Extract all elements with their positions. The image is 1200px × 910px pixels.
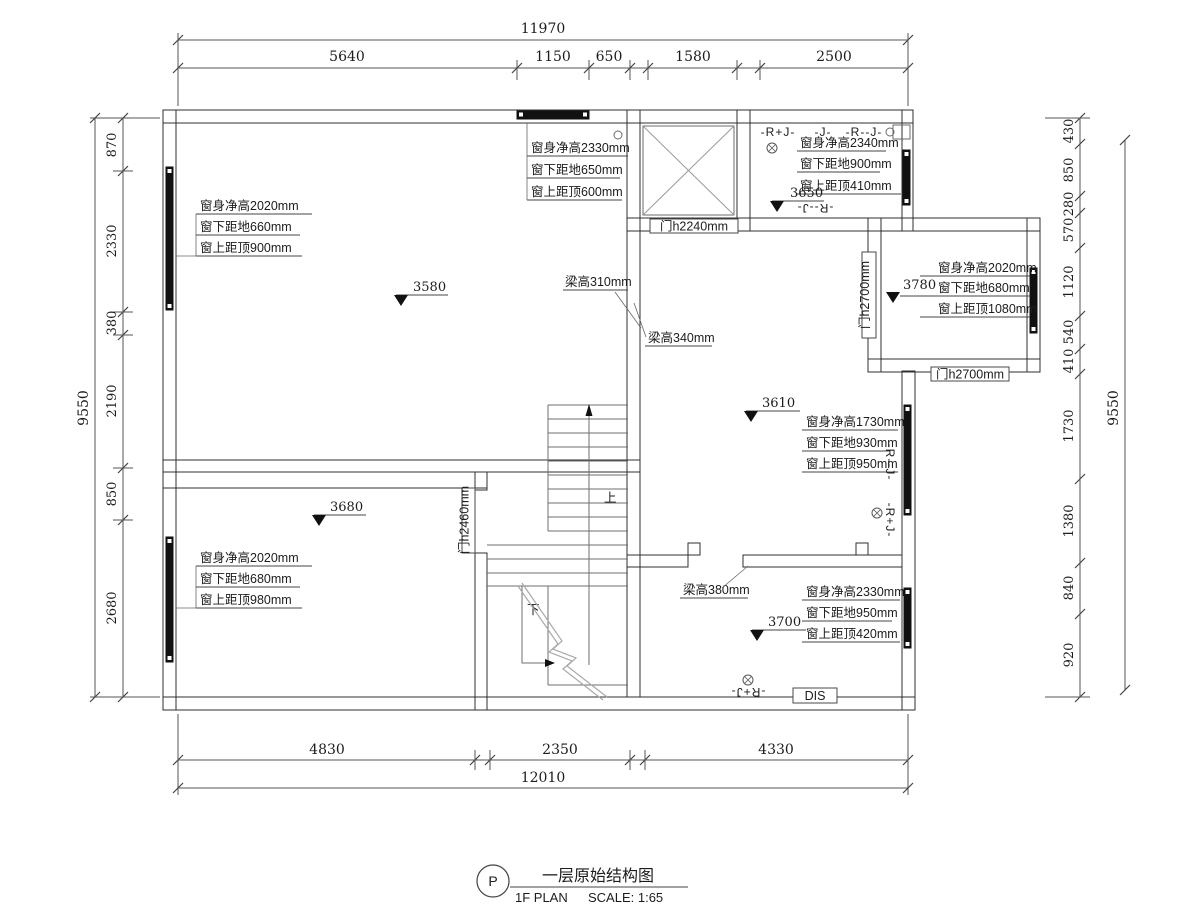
note-line: 窗身净高2330mm xyxy=(531,140,630,155)
dim-top-seg: 1580 xyxy=(675,49,711,65)
dim-left-seg: 2330 xyxy=(105,224,120,257)
radiator-hub-icon xyxy=(872,508,882,518)
note-line: 窗下距地660mm xyxy=(200,220,292,234)
dim-left-total: 9550 xyxy=(76,390,92,426)
note-line: 窗身净高2330mm xyxy=(806,584,905,599)
dis-label: DIS xyxy=(805,689,826,703)
dim-left-seg: 870 xyxy=(105,133,120,158)
stair-up-label: 上 xyxy=(604,491,617,505)
beam-label-310: 梁高310mm xyxy=(565,274,632,289)
dim-right-seg: 840 xyxy=(1062,576,1077,601)
dim-top-seg: 650 xyxy=(596,49,623,65)
shaft-box xyxy=(643,126,734,215)
level-value: 3780 xyxy=(903,278,936,293)
dim-bottom-total: 12010 xyxy=(521,770,566,786)
dim-right-seg: 280 xyxy=(1062,192,1077,217)
dimension-bottom: 4830 2350 4330 12010 xyxy=(173,714,913,795)
window-note-bottom-left: 窗身净高2020mm 窗下距地680mm 窗上距顶980mm xyxy=(176,550,312,608)
mark-rj-top-1: -R+J- xyxy=(761,125,796,139)
window-top xyxy=(517,111,589,119)
window-right-room xyxy=(1030,268,1037,333)
window-left-lower xyxy=(166,537,173,662)
plan-tag: P xyxy=(488,873,497,889)
dim-left-seg: 380 xyxy=(105,311,120,336)
dim-bottom-seg: 4330 xyxy=(758,742,794,758)
level-room-bottom-right: 3700 xyxy=(750,615,806,641)
door-label-right-room-bottom: 门h2700mm xyxy=(936,367,1004,382)
note-line: 窗身净高2020mm xyxy=(200,550,299,565)
beam-label-340: 梁高340mm xyxy=(648,330,715,345)
window-left-upper xyxy=(166,167,173,310)
dim-right-seg: 430 xyxy=(1062,119,1077,144)
dimension-top: 11970 5640 1150 650 1580 2500 xyxy=(173,21,913,106)
stair-up-arrow xyxy=(586,404,593,665)
note-line: 窗下距地950mm xyxy=(806,606,898,620)
note-line: 窗下距地900mm xyxy=(800,157,892,171)
dim-top-seg: 5640 xyxy=(329,49,365,65)
mark-rj-top-4: -R--J- xyxy=(797,201,834,215)
mark-rj-right-1: -R--J- xyxy=(883,444,897,481)
dim-left-seg: 2680 xyxy=(105,591,120,624)
window-note-bottom-right: 窗身净高2330mm 窗下距地950mm 窗上距顶420mm xyxy=(802,584,905,642)
plan-scale: SCALE: 1:65 xyxy=(588,890,663,905)
title-block: P 一层原始结构图 1F PLAN SCALE: 1:65 xyxy=(477,865,688,905)
dim-right-seg: 1380 xyxy=(1062,504,1077,537)
floor-plan-svg: 上 下 门h2240mm 门h2700mm 门h2700mm 门h2460mm … xyxy=(0,0,1200,910)
dim-right-seg: 920 xyxy=(1062,643,1077,668)
door-label-bottom-left: 门h2460mm xyxy=(457,486,472,554)
break-line xyxy=(518,583,607,700)
door-label-right-room-side: 门h2700mm xyxy=(857,261,872,329)
beam-label-380: 梁高380mm xyxy=(683,582,750,597)
level-room-right: 3780 xyxy=(886,278,936,303)
dim-right-seg: 850 xyxy=(1062,158,1077,183)
level-value: 3680 xyxy=(330,500,363,515)
note-line: 窗身净高2020mm xyxy=(200,198,299,213)
mark-rj-top-3: -R--J- xyxy=(846,125,883,139)
level-living: 3610 xyxy=(744,396,800,422)
level-value: 3650 xyxy=(790,186,823,201)
plan-title-cn: 一层原始结构图 xyxy=(542,867,654,885)
note-line: 窗上距顶900mm xyxy=(200,241,292,255)
dim-right-seg: 1730 xyxy=(1062,409,1077,442)
window-note-top-left: 窗身净高2020mm 窗下距地660mm 窗上距顶900mm xyxy=(176,198,312,256)
note-line: 窗身净高2020mm xyxy=(938,260,1037,275)
note-line: 窗下距地680mm xyxy=(200,572,292,586)
dim-left-seg: 850 xyxy=(105,482,120,507)
dim-left-seg: 2190 xyxy=(105,384,120,417)
dim-bottom-seg: 4830 xyxy=(309,742,345,758)
level-value: 3700 xyxy=(768,615,801,630)
dimension-right: 430 850 280 570 1120 540 410 1730 1380 8… xyxy=(1045,113,1130,702)
dim-bottom-seg: 2350 xyxy=(542,742,578,758)
level-value: 3580 xyxy=(413,280,446,295)
dim-top-seg: 2500 xyxy=(816,49,852,65)
dim-right-total: 9550 xyxy=(1106,390,1122,426)
note-line: 窗上距顶1080mm xyxy=(938,302,1037,316)
radiator-hub-icon xyxy=(743,675,753,685)
dim-right-seg: 570 xyxy=(1062,218,1077,243)
note-line: 窗下距地650mm xyxy=(531,163,623,177)
staircase: 上 下 xyxy=(487,404,628,700)
dim-right-seg: 1120 xyxy=(1062,265,1077,298)
floor-plan-page: 上 下 门h2240mm 门h2700mm 门h2700mm 门h2460mm … xyxy=(0,0,1200,910)
beam-notes: 梁高310mm 梁高340mm 梁高380mm xyxy=(563,274,750,598)
window-living xyxy=(904,405,911,515)
window-note-top-middle: 窗身净高2330mm 窗下距地650mm 窗上距顶600mm xyxy=(527,123,630,200)
plan-title-en: 1F PLAN xyxy=(515,890,568,905)
mark-rj-top-2: -J- xyxy=(815,125,832,139)
mark-rj-bottom: -R+J- xyxy=(731,685,766,699)
radiator-hub-icon xyxy=(767,143,777,153)
note-line: 窗身净高1730mm xyxy=(806,414,905,429)
door-label-shaft: 门h2240mm xyxy=(660,219,728,234)
note-line: 窗上距顶420mm xyxy=(806,627,898,641)
level-room-bottom-left: 3680 xyxy=(312,500,366,526)
note-line: 窗上距顶980mm xyxy=(200,593,292,607)
dim-right-seg: 410 xyxy=(1062,349,1077,374)
dim-top-total: 11970 xyxy=(521,21,566,37)
window-bottom-right xyxy=(904,588,911,648)
dim-right-seg: 540 xyxy=(1062,320,1077,345)
door-labels: 门h2240mm 门h2700mm 门h2700mm 门h2460mm xyxy=(457,219,1010,555)
dim-top-seg: 1150 xyxy=(535,49,571,65)
note-line: 窗下距地680mm xyxy=(938,281,1030,295)
level-value: 3610 xyxy=(762,396,795,411)
window-top-right xyxy=(903,150,910,205)
dimension-left: 870 2330 380 2190 850 2680 9550 xyxy=(76,113,160,702)
note-line: 窗上距顶600mm xyxy=(531,185,623,199)
level-room-top-left: 3580 xyxy=(394,280,448,306)
mark-rj-right-2: -R+J- xyxy=(883,503,897,538)
